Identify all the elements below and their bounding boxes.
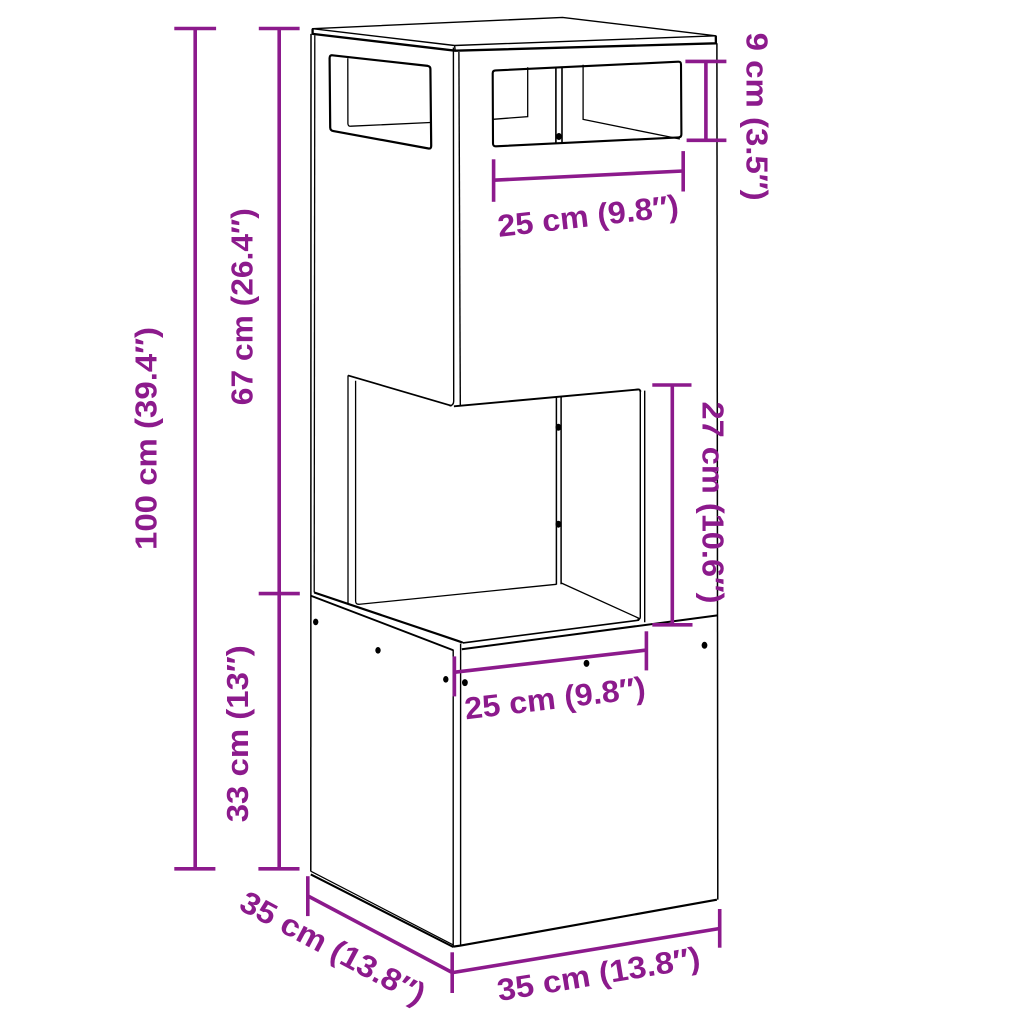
svg-text:33 cm (13″): 33 cm (13″) bbox=[220, 645, 255, 822]
svg-text:9 cm (3.5″): 9 cm (3.5″) bbox=[740, 33, 775, 201]
svg-text:100 cm (39.4″): 100 cm (39.4″) bbox=[128, 327, 163, 550]
svg-text:67 cm (26.4″): 67 cm (26.4″) bbox=[225, 208, 260, 405]
svg-text:27 cm (10.6″): 27 cm (10.6″) bbox=[695, 402, 730, 604]
